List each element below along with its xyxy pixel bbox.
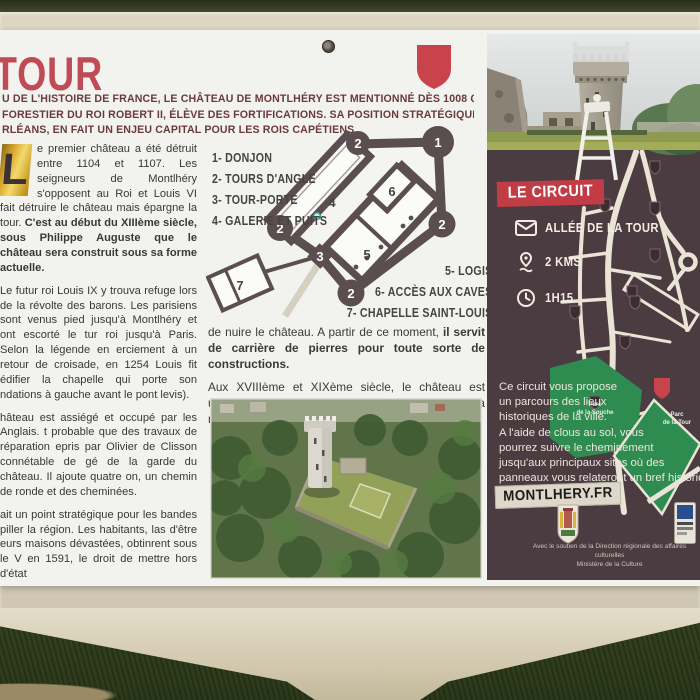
panel-board: TOUR U DE L'HISTOIRE DE FRANCE, LE CHÂTE… [0,30,700,586]
history-paragraph-1: Le premier château a été détruit entre 1… [0,142,197,276]
plan-number-6: 6 [388,184,395,199]
left-column: Le premier château a été détruit entre 1… [0,142,197,586]
dropcap-letter: L [0,144,32,196]
description-line: jusqu'aux principaux sites où des [499,456,700,471]
paragraph-bold-text: C'est au début du XIIIème siècle, sous P… [0,217,197,274]
plan-legend-left: 1- DONJON 2- TOURS D'ANGLE 3- TOUR-PORTE… [212,148,348,232]
description-line: A l'aide de clous au sol, vous [499,426,700,441]
plan-number-2: 2 [354,136,361,151]
screw-top [322,40,335,53]
panel-pedestal [0,608,700,700]
location-pin-icon [515,251,537,273]
envelope-icon [515,220,537,236]
description-line: historiques de la ville. [499,410,700,425]
paragraph-text: de nuire le château. A partir de ce mome… [208,325,443,339]
legend-item: 6- ACCÈS AUX CAVES [346,282,492,303]
description-line: pourrez suivre le cheminement [499,441,700,456]
credit-line: Avec le soutien de la Direction régional… [527,542,692,560]
circuit-info-duration: 1H15 [515,288,672,308]
plan-number-7: 7 [236,278,243,293]
ministry-logo [674,502,696,544]
legend-item: 4- GALERIE ET PUITS [212,211,327,232]
credit-line: Ministère de la Culture [527,560,692,569]
clock-icon [515,288,537,308]
legend-item: 5- LOGIS [346,261,492,282]
circuit-duration-label: 1H15 [545,291,573,305]
legend-item: 3- TOUR-PORTE [212,190,327,211]
credit-text: Avec le soutien de la Direction régional… [527,542,692,569]
circuit-section: Parc de la Souche Parc de la Tour LE CIR… [487,150,700,580]
plan-number-2: 2 [438,217,445,232]
roundabout [681,255,696,270]
legend-item: 1- DONJON [212,148,327,169]
panel-frame: TOUR U DE L'HISTOIRE DE FRANCE, LE CHÂTE… [0,12,700,608]
intro-line: U DE L'HISTOIRE DE FRANCE, LE CHÂTEAU DE… [2,92,474,108]
plan-number-1: 1 [434,135,441,150]
castle-plan: 1 2 2 2 2 3 4 5 6 7 1- DONJON 2- TOURS D… [206,126,484,326]
history-paragraph-3: hâteau est assiégé et occupé par les Ang… [0,411,197,500]
circuit-info-address: ALLÉE DE LA TOUR [515,220,672,236]
circuit-info-distance: 2 KMS [515,251,672,273]
history-paragraph-4: ait un point stratégique pour les bandes… [0,508,197,582]
circuit-info-list: ALLÉE DE LA TOUR 2 KMS [515,220,672,323]
tower-photo [487,34,700,186]
intro-line: FORESTIER DU ROI ROBERT II, ÉLÈVE DES FO… [2,108,474,124]
circuit-address-label: ALLÉE DE LA TOUR [545,221,659,235]
circuit-description: Ce circuit vous propose un parcours des … [499,380,700,486]
legend-item: 7- CHAPELLE SAINT-LOUIS [346,303,492,324]
aerial-photo-of-tower [210,398,482,579]
circuit-distance-label: 2 KMS [545,255,581,269]
panel-stand-area [0,608,700,700]
heraldic-shield-icon [415,43,453,96]
page-title: TOUR [0,50,103,97]
plan-legend-right: 5- LOGIS 6- ACCÈS AUX CAVES 7- CHAPELLE … [321,261,493,324]
photo-of-information-panel: TOUR U DE L'HISTOIRE DE FRANCE, LE CHÂTE… [0,0,700,700]
description-line: un parcours des lieux [499,395,700,410]
history-paragraph-2: Le futur roi Louis IX y trouva refuge lo… [0,284,197,403]
description-line: Ce circuit vous propose [499,380,700,395]
plan-number-5: 5 [363,247,370,262]
legend-item: 2- TOURS D'ANGLE [212,169,327,190]
middle-paragraph-1: de nuire le château. A partir de ce mome… [208,324,485,372]
city-emblem-logo [557,504,579,544]
